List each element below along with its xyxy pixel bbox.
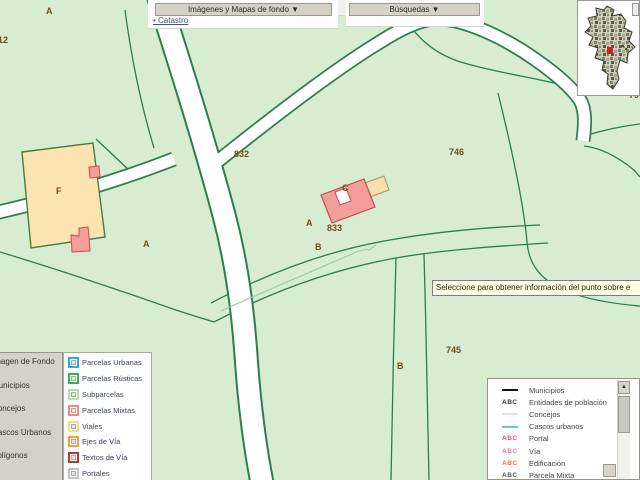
- current-municipality-highlight: [607, 47, 613, 54]
- symbology-legend-panel: Municipios ABC Entidades de población Co…: [487, 378, 640, 480]
- legend-item-label: Entidades de población: [529, 398, 607, 407]
- search-dropdown-button[interactable]: Búsquedas ▼: [349, 3, 480, 16]
- map-viewer: A 712 832 746 F C A A 833 B 745 B 79 Imá…: [0, 0, 640, 480]
- layer-checkbox-icon[interactable]: [68, 468, 79, 479]
- legend-item-label: Portal: [529, 434, 549, 443]
- parcel-label: 833: [327, 223, 342, 233]
- checkbox-inner: [71, 392, 76, 397]
- abc-text-symbol: ABC: [502, 399, 518, 406]
- layer-toggle-subparcelas[interactable]: Subparcelas: [68, 387, 151, 403]
- layer-label: Subparcelas: [82, 390, 124, 399]
- layer-checkbox-icon[interactable]: [68, 389, 79, 400]
- legend-item-label: Edificación: [529, 459, 565, 468]
- line-symbol: [502, 389, 518, 391]
- legend-item-label: Cascos urbanos: [529, 422, 583, 431]
- layer-checkbox-icon[interactable]: [68, 421, 79, 432]
- layer-toggle-portales[interactable]: Portales: [68, 466, 151, 480]
- layer-toggle-parcelas-rusticas[interactable]: Parcelas Rústicas: [68, 371, 151, 387]
- legend-categories-panel: Imagen de Fondo Municipios Concejos Casc…: [0, 352, 63, 480]
- abc-text-symbol: ABC: [502, 448, 518, 455]
- scroll-up-icon[interactable]: ▲: [618, 381, 630, 394]
- legend-item-label: Vía: [529, 447, 540, 456]
- backgrounds-dropdown-button[interactable]: Imágenes y Mapas de fondo ▼: [155, 3, 332, 16]
- subparcel-label: B: [397, 361, 404, 371]
- parcel-label: 832: [234, 149, 249, 159]
- layer-toggle-panel: Parcelas Urbanas Parcelas Rústicas Subpa…: [63, 352, 152, 480]
- overview-region-shape: [578, 1, 639, 95]
- layer-toggle-textos-de-via[interactable]: Textos de Vía: [68, 450, 151, 466]
- abc-text-symbol: ABC: [502, 472, 518, 479]
- checkbox-inner: [71, 471, 76, 476]
- layer-checkbox-icon[interactable]: [68, 357, 79, 368]
- subparcel-label: F: [56, 186, 62, 196]
- subparcel-label: B: [315, 242, 322, 252]
- overview-minimap[interactable]: [577, 0, 640, 96]
- layer-checkbox-icon[interactable]: [68, 405, 79, 416]
- checkbox-inner: [71, 424, 76, 429]
- legend-category-poligonos[interactable]: Polígonos: [0, 451, 62, 475]
- toolbar-divider: [338, 0, 346, 16]
- checkbox-inner: [71, 455, 76, 460]
- legend-category-concejos[interactable]: Concejos: [0, 404, 62, 428]
- layer-toggle-viales[interactable]: Viales: [68, 418, 151, 434]
- legend-scrollbar[interactable]: ▲: [617, 380, 630, 480]
- legend-category-imagen-de-fondo[interactable]: Imagen de Fondo: [0, 357, 62, 381]
- layer-label: Ejes de Vía: [82, 437, 120, 446]
- building-label: C: [342, 183, 349, 193]
- subparcel-label: A: [306, 218, 313, 228]
- scrollbar-corner-button[interactable]: [603, 464, 616, 477]
- layer-label: Portales: [82, 469, 110, 478]
- parcel-label: A: [46, 6, 53, 16]
- minimap-tab[interactable]: [632, 3, 639, 16]
- legend-item-label: Parcela Mixta: [529, 471, 574, 480]
- parcel-label: 746: [449, 147, 464, 157]
- layer-checkbox-icon[interactable]: [68, 373, 79, 384]
- map-info-tooltip: Seleccione para obtener información del …: [432, 280, 640, 296]
- layer-label: Parcelas Mixtas: [82, 406, 135, 415]
- line-symbol: [502, 413, 518, 415]
- layer-label: Parcelas Urbanas: [82, 358, 142, 367]
- layer-label: Parcelas Rústicas: [82, 374, 142, 383]
- mixed-parcel-f[interactable]: [22, 143, 105, 252]
- layer-toggle-parcelas-urbanas[interactable]: Parcelas Urbanas: [68, 355, 151, 371]
- catastro-layer-link[interactable]: • Catastro: [153, 16, 188, 25]
- layer-toggle-ejes-de-via[interactable]: Ejes de Vía: [68, 434, 151, 450]
- abc-text-symbol: ABC: [502, 460, 518, 467]
- legend-category-cascos-urbanos[interactable]: Cascos Urbanos: [0, 428, 62, 452]
- legend-item-label: Municipios: [529, 386, 564, 395]
- layer-label: Textos de Vía: [82, 453, 127, 462]
- checkbox-inner: [71, 439, 76, 444]
- legend-item-label: Concejos: [529, 410, 560, 419]
- parcel-label: 745: [446, 345, 461, 355]
- layer-label: Viales: [82, 422, 102, 431]
- parcel-label: 712: [0, 35, 8, 45]
- small-building: [89, 166, 100, 178]
- subparcel-label: A: [143, 239, 150, 249]
- layer-checkbox-icon[interactable]: [68, 452, 79, 463]
- checkbox-inner: [71, 376, 76, 381]
- building-c[interactable]: [321, 176, 389, 223]
- scrollbar-thumb[interactable]: [618, 396, 630, 433]
- line-symbol: [502, 426, 518, 428]
- checkbox-inner: [71, 360, 76, 365]
- abc-text-symbol: ABC: [502, 435, 518, 442]
- layer-toggle-parcelas-mixtas[interactable]: Parcelas Mixtas: [68, 402, 151, 418]
- layer-checkbox-icon[interactable]: [68, 436, 79, 447]
- checkbox-inner: [71, 408, 76, 413]
- legend-category-municipios[interactable]: Municipios: [0, 381, 62, 405]
